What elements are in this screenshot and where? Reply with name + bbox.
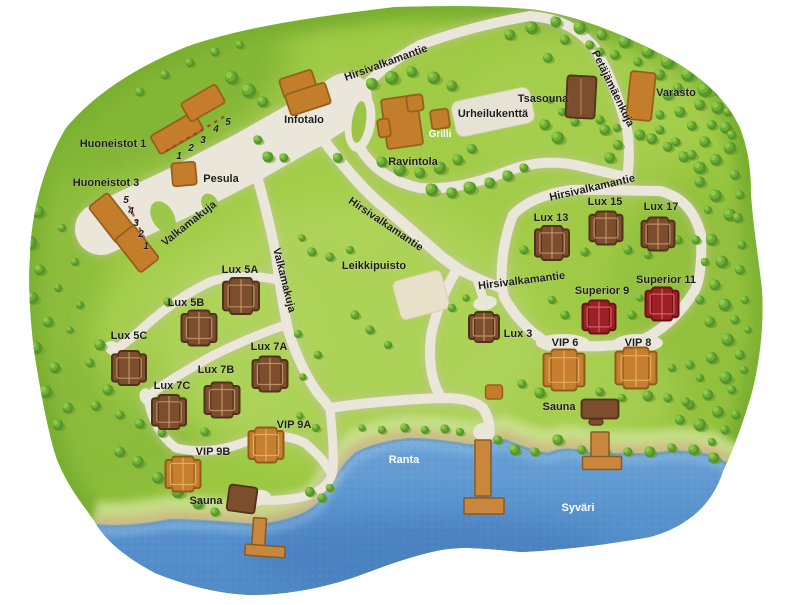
svg-text:3: 3 xyxy=(200,135,206,146)
svg-text:3: 3 xyxy=(133,218,139,229)
svg-text:Ranta: Ranta xyxy=(389,454,420,466)
svg-text:4: 4 xyxy=(212,124,219,135)
svg-text:5: 5 xyxy=(225,117,231,128)
svg-text:VIP 9A: VIP 9A xyxy=(277,419,312,431)
svg-text:Syväri: Syväri xyxy=(561,502,594,514)
svg-text:4: 4 xyxy=(127,206,134,217)
svg-text:1: 1 xyxy=(176,151,182,162)
svg-text:Superior 9: Superior 9 xyxy=(575,285,629,297)
svg-text:VIP 8: VIP 8 xyxy=(625,337,652,349)
svg-text:Ravintola: Ravintola xyxy=(388,156,438,168)
svg-text:Pesula: Pesula xyxy=(203,173,239,185)
svg-text:Lux 5A: Lux 5A xyxy=(222,264,259,276)
svg-text:Lux 5C: Lux 5C xyxy=(111,330,148,342)
svg-text:Lux 13: Lux 13 xyxy=(534,212,569,224)
svg-text:Leikkipuisto: Leikkipuisto xyxy=(342,260,406,272)
svg-text:2: 2 xyxy=(137,229,144,240)
svg-text:1: 1 xyxy=(143,241,149,252)
svg-text:Lux 5B: Lux 5B xyxy=(168,297,205,309)
svg-text:5: 5 xyxy=(123,195,129,206)
svg-text:VIP 6: VIP 6 xyxy=(552,337,579,349)
svg-text:Lux 7C: Lux 7C xyxy=(154,380,191,392)
svg-text:Sauna: Sauna xyxy=(189,495,223,507)
svg-text:Lux 3: Lux 3 xyxy=(504,328,533,340)
svg-text:Lux 7A: Lux 7A xyxy=(251,341,288,353)
svg-text:Lux 17: Lux 17 xyxy=(644,201,679,213)
svg-text:Superior 11: Superior 11 xyxy=(636,274,696,286)
svg-text:Huoneistot 1: Huoneistot 1 xyxy=(80,138,147,150)
svg-text:Urheilukenttä: Urheilukenttä xyxy=(458,108,529,120)
svg-text:Infotalo: Infotalo xyxy=(284,114,324,126)
svg-text:VIP 9B: VIP 9B xyxy=(196,446,231,458)
svg-text:Huoneistot 3: Huoneistot 3 xyxy=(73,177,140,189)
svg-text:Varasto: Varasto xyxy=(656,87,696,99)
svg-text:Tsasouna: Tsasouna xyxy=(518,93,569,105)
svg-text:Sauna: Sauna xyxy=(542,401,576,413)
svg-text:Lux 7B: Lux 7B xyxy=(198,364,235,376)
svg-text:Lux 15: Lux 15 xyxy=(588,196,623,208)
svg-text:Grilli: Grilli xyxy=(429,129,452,140)
svg-text:2: 2 xyxy=(187,143,194,154)
